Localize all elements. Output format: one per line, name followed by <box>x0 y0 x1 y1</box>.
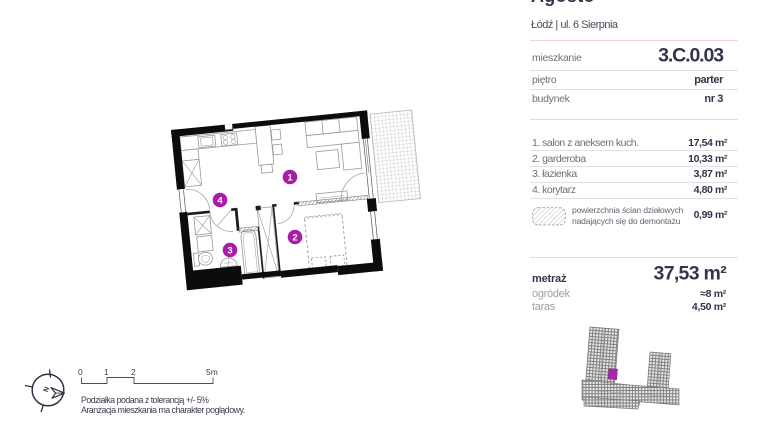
svg-text:4: 4 <box>217 195 223 206</box>
svg-text:N: N <box>41 385 49 392</box>
svg-text:3: 3 <box>227 245 232 256</box>
svg-text:1: 1 <box>287 172 293 183</box>
svg-text:2: 2 <box>292 232 297 243</box>
